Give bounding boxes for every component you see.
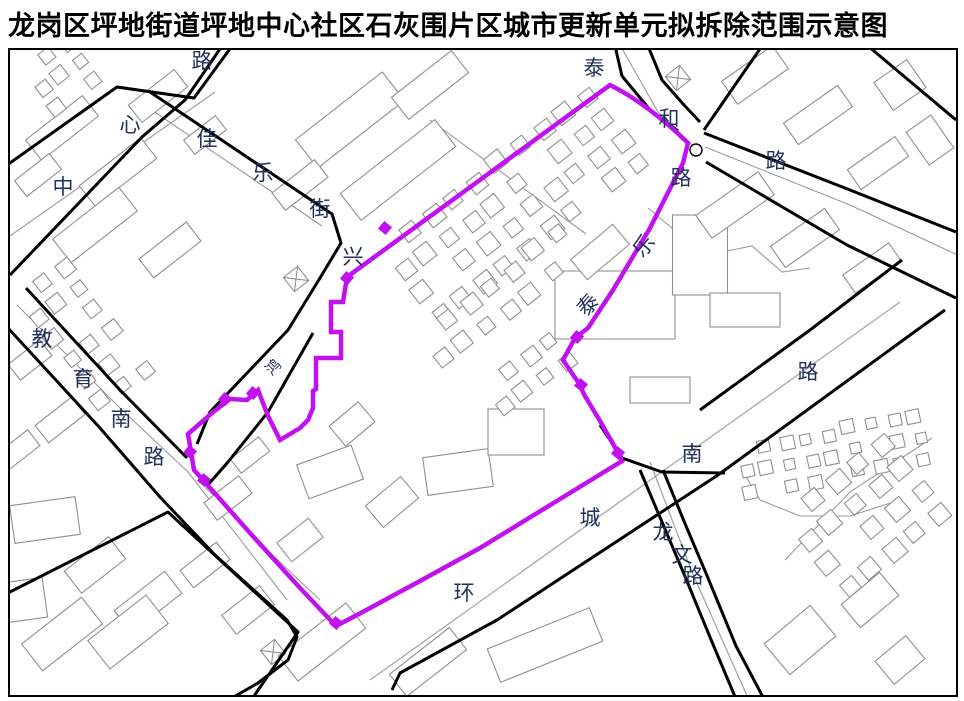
building-outline xyxy=(799,433,811,445)
road-label: 路 xyxy=(144,445,165,469)
building-outline xyxy=(757,460,773,476)
road-label: 乐 xyxy=(253,161,274,185)
building-outline xyxy=(916,453,930,467)
building-outline xyxy=(630,377,690,403)
road-label: 路 xyxy=(683,564,704,588)
road-label: 佳 xyxy=(197,127,218,151)
road-label: 龙 xyxy=(653,520,674,544)
building-outline xyxy=(822,429,836,443)
building-outline xyxy=(839,419,855,435)
building-outline xyxy=(807,454,821,468)
road-label: 南 xyxy=(111,407,132,431)
map-canvas: 路心中佳乐街兴泰和路路乐泰鸿教育南路环城南路龙文路 xyxy=(0,0,964,701)
building-outline xyxy=(849,442,861,454)
building-outline xyxy=(888,413,902,427)
building-outline xyxy=(874,458,890,474)
building-outline xyxy=(780,435,796,451)
road-label: 城 xyxy=(580,506,601,530)
building-outline xyxy=(741,464,755,478)
road-label: 兴 xyxy=(343,245,364,269)
road-label: 南 xyxy=(682,442,703,466)
road-label: 路 xyxy=(766,149,787,173)
building-outline xyxy=(488,409,544,455)
road-label: 中 xyxy=(53,175,74,199)
road-label: 心 xyxy=(120,113,141,137)
building-outline xyxy=(784,479,798,493)
building-outline xyxy=(710,293,780,327)
page: 龙岗区坪地街道坪地中心社区石灰围片区城市更新单元拟拆除范围示意图 路心中佳乐街兴… xyxy=(0,0,964,701)
building-outline xyxy=(915,432,927,444)
building-outline xyxy=(783,458,795,470)
road-label: 路 xyxy=(192,49,213,73)
road-label: 和 xyxy=(659,107,680,131)
building-outline xyxy=(905,409,921,425)
building-outline xyxy=(808,475,824,491)
road-label: 街 xyxy=(310,197,331,221)
road-label: 教 xyxy=(32,327,53,351)
road-label: 育 xyxy=(73,367,94,391)
building-outline xyxy=(865,417,877,429)
road-label: 路 xyxy=(671,166,692,190)
road-label: 泰 xyxy=(584,56,605,80)
road-label: 环 xyxy=(454,581,475,605)
building-outline xyxy=(823,450,839,466)
road-label: 路 xyxy=(798,360,819,384)
building-outline xyxy=(742,484,758,500)
map: 路心中佳乐街兴泰和路路乐泰鸿教育南路环城南路龙文路 xyxy=(0,0,964,701)
